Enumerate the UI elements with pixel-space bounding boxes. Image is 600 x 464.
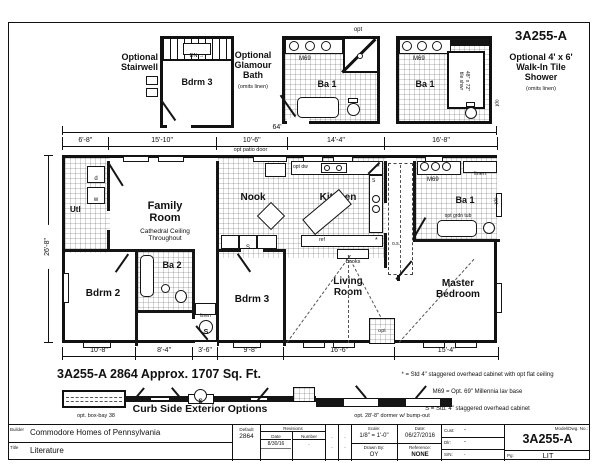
legend-line-star: * = Std 4" staggered overhead cabinet wi… — [365, 371, 590, 380]
sink-circle — [402, 41, 412, 51]
shower-size-label: 48" x 72" tile shwr — [458, 55, 469, 107]
titleblock-model-cell: Model/Dwg. No.: 3A255-A Pg: LIT — [505, 425, 590, 461]
sink-circle — [431, 162, 440, 171]
room-label-inset-bdrm3: Bdrm 3 — [173, 77, 221, 87]
room-label-bath2: Ba 2 — [155, 260, 189, 270]
drawnby-value: OY — [352, 452, 396, 459]
star-marker: * — [375, 237, 378, 245]
walkin-shower-option-label: Optional 4' x 6' Walk-In Tile Shower — [494, 52, 588, 82]
dim-row-bottom: 10'-8" 8'-4" 3'-6" 9'-8" 16'-6" 15'-4" — [62, 347, 499, 360]
m69-cabinet-label: M69 — [427, 177, 439, 184]
kitchen-counter — [301, 235, 383, 247]
roof-line — [415, 385, 426, 398]
boxbay-outline — [62, 390, 126, 408]
opt-dishwasher-label: opt dw — [293, 165, 308, 171]
title-field-label: Title — [10, 445, 18, 450]
linen-label: linen — [200, 313, 211, 319]
dim-segment: 16'-8" — [384, 137, 497, 150]
dryer-box: d — [87, 166, 105, 183]
column-divider — [325, 425, 326, 461]
drawnby-field-label: Drawn By: — [352, 445, 396, 450]
bathtub — [297, 97, 339, 118]
rev-dot: . — [339, 435, 351, 441]
rev-dot: . — [339, 445, 351, 451]
m69-cabinet-label: M69 — [299, 56, 311, 63]
fireplace-opt: opt — [369, 318, 395, 344]
bumpout-wall — [378, 398, 406, 407]
scale-value: 1/8" = 1'-0" — [352, 433, 396, 440]
date-field-label: Date: — [398, 426, 442, 431]
revisions-header: Revisions — [261, 426, 325, 432]
bookcase: books — [337, 249, 369, 259]
stairs-dn-label: DN → — [183, 43, 211, 55]
dim-label: 15'-4" — [375, 347, 518, 354]
rev-dot: . — [293, 442, 325, 448]
dryer-label: d — [94, 176, 97, 182]
wall — [384, 161, 387, 203]
wall — [384, 233, 387, 268]
sink-circle — [432, 41, 442, 51]
sofa — [257, 235, 277, 249]
titleblock-revisions-cell: Revisions Date Number 8/30/16 . . . . . — [261, 425, 352, 461]
rev-dot: . — [326, 445, 338, 451]
titleblock-scale-grid: Scale: 1/8" = 1'-0" Date: 06/27/2016 Dra… — [352, 425, 442, 461]
window — [63, 273, 69, 303]
toilet — [175, 290, 187, 303]
washer-box: w — [87, 187, 105, 204]
sn-value: . — [464, 451, 466, 458]
floorplan-sheet: Optional Stairwell DN → Bdrm 3 Optional … — [0, 0, 600, 464]
room-label-inset-ba1: Ba 1 — [307, 79, 347, 89]
stairwell-option-label: Optional Stairwell — [96, 52, 158, 72]
m69-cabinet-label: M69 — [413, 56, 425, 63]
dlr-field-label: Dlr: — [444, 440, 451, 445]
garden-tub-label: opt grdn tub — [435, 214, 481, 220]
opt-shower-label: opt — [348, 27, 368, 34]
washer-label: w — [94, 197, 98, 203]
burner-circle — [336, 165, 342, 171]
window — [123, 156, 149, 162]
sink-circle — [305, 41, 315, 51]
plan-title: 3A255-A 2864 Approx. 1707 Sq. Ft. — [57, 367, 357, 381]
sink-circle — [442, 162, 451, 171]
sink-circle — [420, 162, 429, 171]
bumpout-wall — [440, 398, 452, 407]
rev-date-header: Date — [261, 434, 291, 440]
bathtub — [140, 255, 154, 297]
row-divider — [8, 442, 233, 443]
window — [158, 156, 184, 162]
linen-closet: linen — [195, 303, 216, 315]
boxbay-dashed-line — [66, 397, 122, 398]
date-value: 06/27/2016 — [398, 433, 442, 440]
rev-date-entry: 8/30/16 — [261, 442, 291, 449]
window — [496, 283, 502, 313]
reference-field-label: Reference: — [398, 445, 442, 450]
door-swing-line — [280, 95, 296, 117]
ceiling-ridge-dashed-line — [348, 255, 349, 343]
toilet-tank — [348, 98, 358, 103]
rev-dot: . — [326, 435, 338, 441]
wall — [413, 161, 416, 239]
dim-line — [63, 132, 496, 133]
wall — [138, 249, 195, 252]
dormer-label: opt. 28'-8" dormer w/ bump-out — [330, 413, 454, 419]
elevation-window — [150, 397, 170, 401]
sofa — [221, 235, 239, 249]
glamour-bath-note: (omits linen) — [226, 84, 280, 90]
linen-closet: linen — [463, 161, 497, 173]
dormer-hatch — [293, 387, 315, 402]
entry-step — [146, 88, 158, 97]
wall — [216, 161, 219, 251]
titleblock-cust-cell: Cust: - Dlr: - S/N: . — [442, 425, 505, 461]
room-label-family: Family Room — [115, 200, 215, 225]
roof-line — [355, 385, 366, 398]
burner-circle — [324, 165, 330, 171]
room-label-master: Master Bedroom — [420, 278, 496, 300]
sink-circle — [321, 41, 331, 51]
toilet — [483, 222, 495, 234]
shower-drain — [357, 53, 363, 59]
default-field-label: Default — [233, 427, 260, 432]
opt-window-label: opt — [492, 197, 498, 204]
room-label-inset-ba1: Ba 1 — [405, 79, 445, 89]
wall — [107, 161, 110, 211]
toilet-tank — [466, 102, 475, 107]
dn-text: DN → — [190, 53, 205, 59]
door-swing-line — [115, 254, 129, 273]
family-ceiling-note: Cathedral Ceiling Throughout — [115, 228, 215, 243]
cabinet-s-label: S — [246, 245, 250, 251]
stairwell-inset: DN → Bdrm 3 — [160, 36, 234, 128]
room-label-bdrm3: Bdrm 3 — [222, 294, 282, 305]
pg-field-label: Pg: — [507, 453, 514, 458]
reference-value: NONE — [398, 452, 442, 459]
glamour-bath-inset: M69 Ba 1 — [282, 36, 380, 124]
walkin-shower-note: (omits linen) — [494, 86, 588, 92]
cust-value: - — [464, 427, 466, 434]
wall — [138, 310, 195, 313]
os-label: o.s. — [392, 242, 400, 248]
curbside-title: Curb Side Exterior Options — [130, 404, 270, 416]
patio-door — [253, 156, 287, 162]
tile-shower-bath-inset: M69 48" x 72" tile shwr Ba 1 — [396, 36, 492, 124]
drawing-title: Literature — [30, 447, 64, 456]
title-block: Builder Commodore Homes of Pennsylvania … — [8, 424, 590, 460]
pg-value: LIT — [533, 452, 563, 460]
dim-segment: 15'-4" — [394, 347, 498, 360]
bathtub — [437, 220, 477, 237]
builder-field-label: Builder — [10, 427, 24, 432]
model-number: 3A255-A — [505, 432, 590, 446]
default-value: 2864 — [233, 433, 260, 440]
wall — [413, 239, 500, 242]
sink-circle — [417, 41, 427, 51]
main-floorplan: o.s. Utl d w Family Room Cathedral Ceili… — [62, 155, 497, 343]
toilet — [347, 103, 360, 116]
wall — [219, 249, 241, 252]
dim-label-depth: 26'-8" — [44, 225, 52, 269]
room-label-nook: Nook — [223, 192, 283, 203]
patio-door-note: opt patio door — [215, 147, 286, 153]
entry-step — [146, 76, 158, 85]
wall — [283, 249, 286, 346]
sn-field-label: S/N: — [444, 452, 453, 457]
boxbay-dashed-line — [66, 401, 122, 402]
wall — [65, 249, 135, 252]
door-swing-line — [108, 164, 123, 187]
sink-circle — [372, 205, 380, 213]
door-swing-line — [160, 99, 176, 121]
room-label-bdrm2: Bdrm 2 — [73, 288, 133, 299]
toilet — [465, 107, 477, 119]
circle-s-symbol: S — [194, 389, 207, 402]
glamour-bath-option-label: Optional Glamour Bath — [226, 50, 280, 80]
linen-label: linen — [474, 171, 486, 177]
optional-stair-centerline — [400, 165, 401, 273]
titleblock-builder-cell: Builder Commodore Homes of Pennsylvania … — [8, 425, 233, 461]
row-divider — [442, 437, 505, 438]
sink-circle — [289, 41, 299, 51]
rev-number-header: Number — [293, 434, 325, 440]
ref-label: ref — [319, 238, 325, 244]
dlr-value: - — [464, 439, 466, 446]
cust-field-label: Cust: — [444, 428, 455, 433]
wall — [216, 249, 219, 346]
row-divider — [442, 449, 505, 450]
room-label-bath1: Ba 1 — [443, 195, 487, 205]
cabinet-s: S — [239, 235, 257, 249]
room-label-utility: Utl — [70, 206, 81, 215]
ceiling-ridge-dashed-line — [287, 255, 351, 343]
wall — [135, 249, 138, 346]
model-field-label: Model/Dwg. No.: — [523, 426, 588, 431]
dim-label: 16'-8" — [365, 137, 517, 144]
cabinet-s-label: S — [372, 179, 375, 185]
opt-desk — [265, 163, 286, 177]
wall — [451, 39, 489, 46]
builder-name: Commodore Homes of Pennsylvania — [30, 429, 160, 438]
sink-circle — [372, 195, 380, 203]
scale-field-label: Scale: — [352, 426, 396, 431]
bumpout-wall — [316, 398, 344, 407]
dim-label-overall: 64' — [262, 124, 292, 132]
boxbay-label: opt. box-bay 38 — [64, 413, 128, 419]
sink-circle — [161, 284, 170, 293]
column-divider — [338, 425, 339, 461]
opt-window-label: opt — [493, 99, 499, 106]
titleblock-default-cell: Default 2864 — [233, 425, 261, 461]
fireplace-opt-label: opt — [378, 328, 386, 334]
sheet-model-number: 3A255-A — [494, 29, 588, 44]
